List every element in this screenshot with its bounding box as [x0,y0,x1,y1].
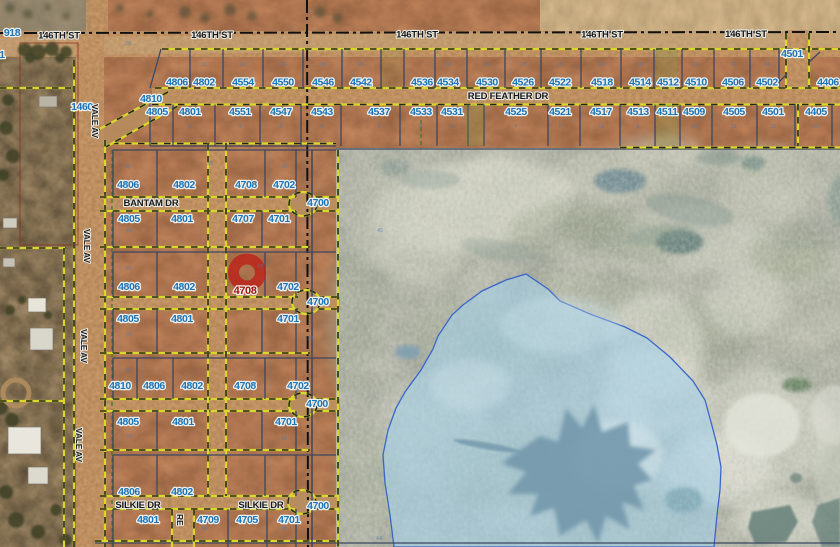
svg-text:26: 26 [484,62,490,68]
svg-text:4514: 4514 [629,77,651,89]
svg-text:10: 10 [693,62,699,68]
svg-text:4533: 4533 [410,106,432,118]
svg-text:4543: 4543 [311,106,333,118]
svg-text:SILKIE DR: SILKIE DR [238,500,284,511]
svg-text:4550: 4550 [272,77,294,89]
svg-text:4802: 4802 [171,486,193,498]
svg-text:33: 33 [125,368,131,374]
svg-text:4806: 4806 [117,179,139,191]
svg-text:4700: 4700 [307,296,329,308]
svg-text:4530: 4530 [476,77,498,89]
svg-text:4510: 4510 [685,77,707,89]
svg-text:4554: 4554 [232,77,254,89]
svg-text:4701: 4701 [278,514,300,526]
svg-text:28: 28 [207,161,213,167]
svg-text:4801: 4801 [172,416,194,428]
svg-text:4708: 4708 [234,380,256,392]
svg-text:4506: 4506 [722,77,744,89]
svg-text:4536: 4536 [411,77,433,89]
svg-text:4802: 4802 [181,380,203,392]
svg-text:4522: 4522 [549,77,571,89]
svg-text:RE: RE [175,514,185,526]
svg-text:4802: 4802 [173,281,195,293]
svg-text:9: 9 [377,124,380,130]
svg-text:29: 29 [358,62,364,68]
svg-text:4802: 4802 [193,77,215,89]
svg-text:31: 31 [280,62,286,68]
svg-text:11: 11 [731,124,737,130]
svg-text:SILKIE DR: SILKIE DR [115,500,161,511]
svg-text:35: 35 [126,434,132,440]
svg-text:4518: 4518 [591,77,613,89]
svg-text:4806: 4806 [143,380,165,392]
svg-text:14: 14 [691,124,698,130]
svg-text:44: 44 [376,536,383,542]
svg-text:6: 6 [279,124,282,130]
svg-text:4805: 4805 [117,416,139,428]
svg-text:4521: 4521 [549,106,571,118]
svg-text:4806: 4806 [118,281,140,293]
svg-text:5: 5 [188,124,191,130]
svg-text:4810: 4810 [109,380,131,392]
svg-text:4406: 4406 [817,77,839,89]
svg-text:34: 34 [445,62,452,68]
svg-text:47: 47 [257,264,263,270]
svg-text:4517: 4517 [590,106,612,118]
svg-text:13: 13 [770,124,776,130]
svg-text:4709: 4709 [197,514,219,526]
svg-text:4501: 4501 [781,48,803,60]
svg-text:4537: 4537 [368,106,390,118]
svg-text:18: 18 [637,62,643,68]
svg-text:31: 31 [201,62,207,68]
svg-text:4701: 4701 [277,313,299,325]
svg-text:4802: 4802 [173,179,195,191]
svg-text:4810: 4810 [140,93,162,105]
svg-text:RED FEATHER DR: RED FEATHER DR [468,91,549,102]
svg-text:4546: 4546 [312,77,334,89]
svg-text:44: 44 [126,228,133,234]
svg-text:4700: 4700 [307,197,329,209]
svg-text:4708: 4708 [234,285,257,297]
svg-text:4512: 4512 [657,77,679,89]
svg-text:12: 12 [599,62,605,68]
svg-text:40: 40 [125,266,131,272]
svg-text:8: 8 [731,62,734,68]
svg-text:VALE AV: VALE AV [90,104,100,138]
svg-text:146TH ST: 146TH ST [38,31,80,42]
svg-text:4801: 4801 [171,213,193,225]
svg-text:4511: 4511 [656,106,678,118]
svg-text:4805: 4805 [117,313,139,325]
svg-text:4702: 4702 [287,380,309,392]
svg-text:9: 9 [636,124,639,130]
svg-text:4531: 4531 [441,106,463,118]
svg-text:146TH ST: 146TH ST [396,30,438,41]
svg-text:7: 7 [514,124,517,130]
svg-text:4700: 4700 [307,500,329,512]
svg-text:42: 42 [281,164,287,170]
svg-text:11: 11 [557,62,563,68]
svg-text:4805: 4805 [118,213,140,225]
svg-text:7: 7 [558,124,561,130]
svg-text:11: 11 [598,124,604,130]
svg-text:13: 13 [813,124,819,130]
svg-text:4806: 4806 [166,77,188,89]
svg-text:VALE AV: VALE AV [74,428,84,462]
svg-text:4505: 4505 [723,106,745,118]
svg-text:4701: 4701 [275,416,297,428]
svg-text:4702: 4702 [273,179,295,191]
svg-text:4534: 4534 [437,77,459,89]
svg-text:16: 16 [764,62,770,68]
svg-text:4805: 4805 [146,106,168,118]
svg-text:30: 30 [320,62,326,68]
svg-text:4700: 4700 [306,398,328,410]
svg-text:4513: 4513 [627,106,649,118]
svg-text:32: 32 [240,62,246,68]
svg-text:BANTAM DR: BANTAM DR [123,198,178,209]
svg-text:37: 37 [126,332,132,338]
svg-text:4502: 4502 [756,77,778,89]
svg-text:146TH ST: 146TH ST [581,30,623,41]
svg-text:41: 41 [125,164,131,170]
svg-text:4801: 4801 [179,106,201,118]
svg-text:VALE AV: VALE AV [79,329,89,363]
svg-text:146TH ST: 146TH ST [725,29,767,40]
svg-text:4501: 4501 [762,106,784,118]
svg-text:4509: 4509 [683,106,705,118]
svg-text:4801: 4801 [137,514,159,526]
svg-text:4542: 4542 [350,77,372,89]
svg-text:4708: 4708 [235,179,257,191]
svg-text:4551: 4551 [229,106,251,118]
svg-text:43: 43 [281,436,287,442]
svg-text:4526: 4526 [512,77,534,89]
svg-text:146TH ST: 146TH ST [191,30,233,41]
svg-text:29: 29 [125,41,131,47]
svg-text:5: 5 [450,124,453,130]
svg-text:4701: 4701 [268,213,290,225]
svg-text:4806: 4806 [118,486,140,498]
svg-text:50: 50 [202,526,208,532]
svg-text:4705: 4705 [236,514,258,526]
svg-text:4547: 4547 [270,106,292,118]
svg-text:45: 45 [377,228,383,234]
svg-text:VALE AV: VALE AV [82,229,92,263]
svg-text:49: 49 [281,526,287,532]
svg-text:4405: 4405 [805,106,827,118]
svg-text:4702: 4702 [277,281,299,293]
svg-text:1: 1 [0,49,5,61]
svg-text:4525: 4525 [505,106,527,118]
svg-text:4707: 4707 [232,213,254,225]
svg-text:918: 918 [4,27,21,39]
svg-text:15: 15 [520,62,526,68]
svg-text:4801: 4801 [171,313,193,325]
svg-text:39: 39 [307,336,313,342]
svg-text:8: 8 [320,124,323,130]
